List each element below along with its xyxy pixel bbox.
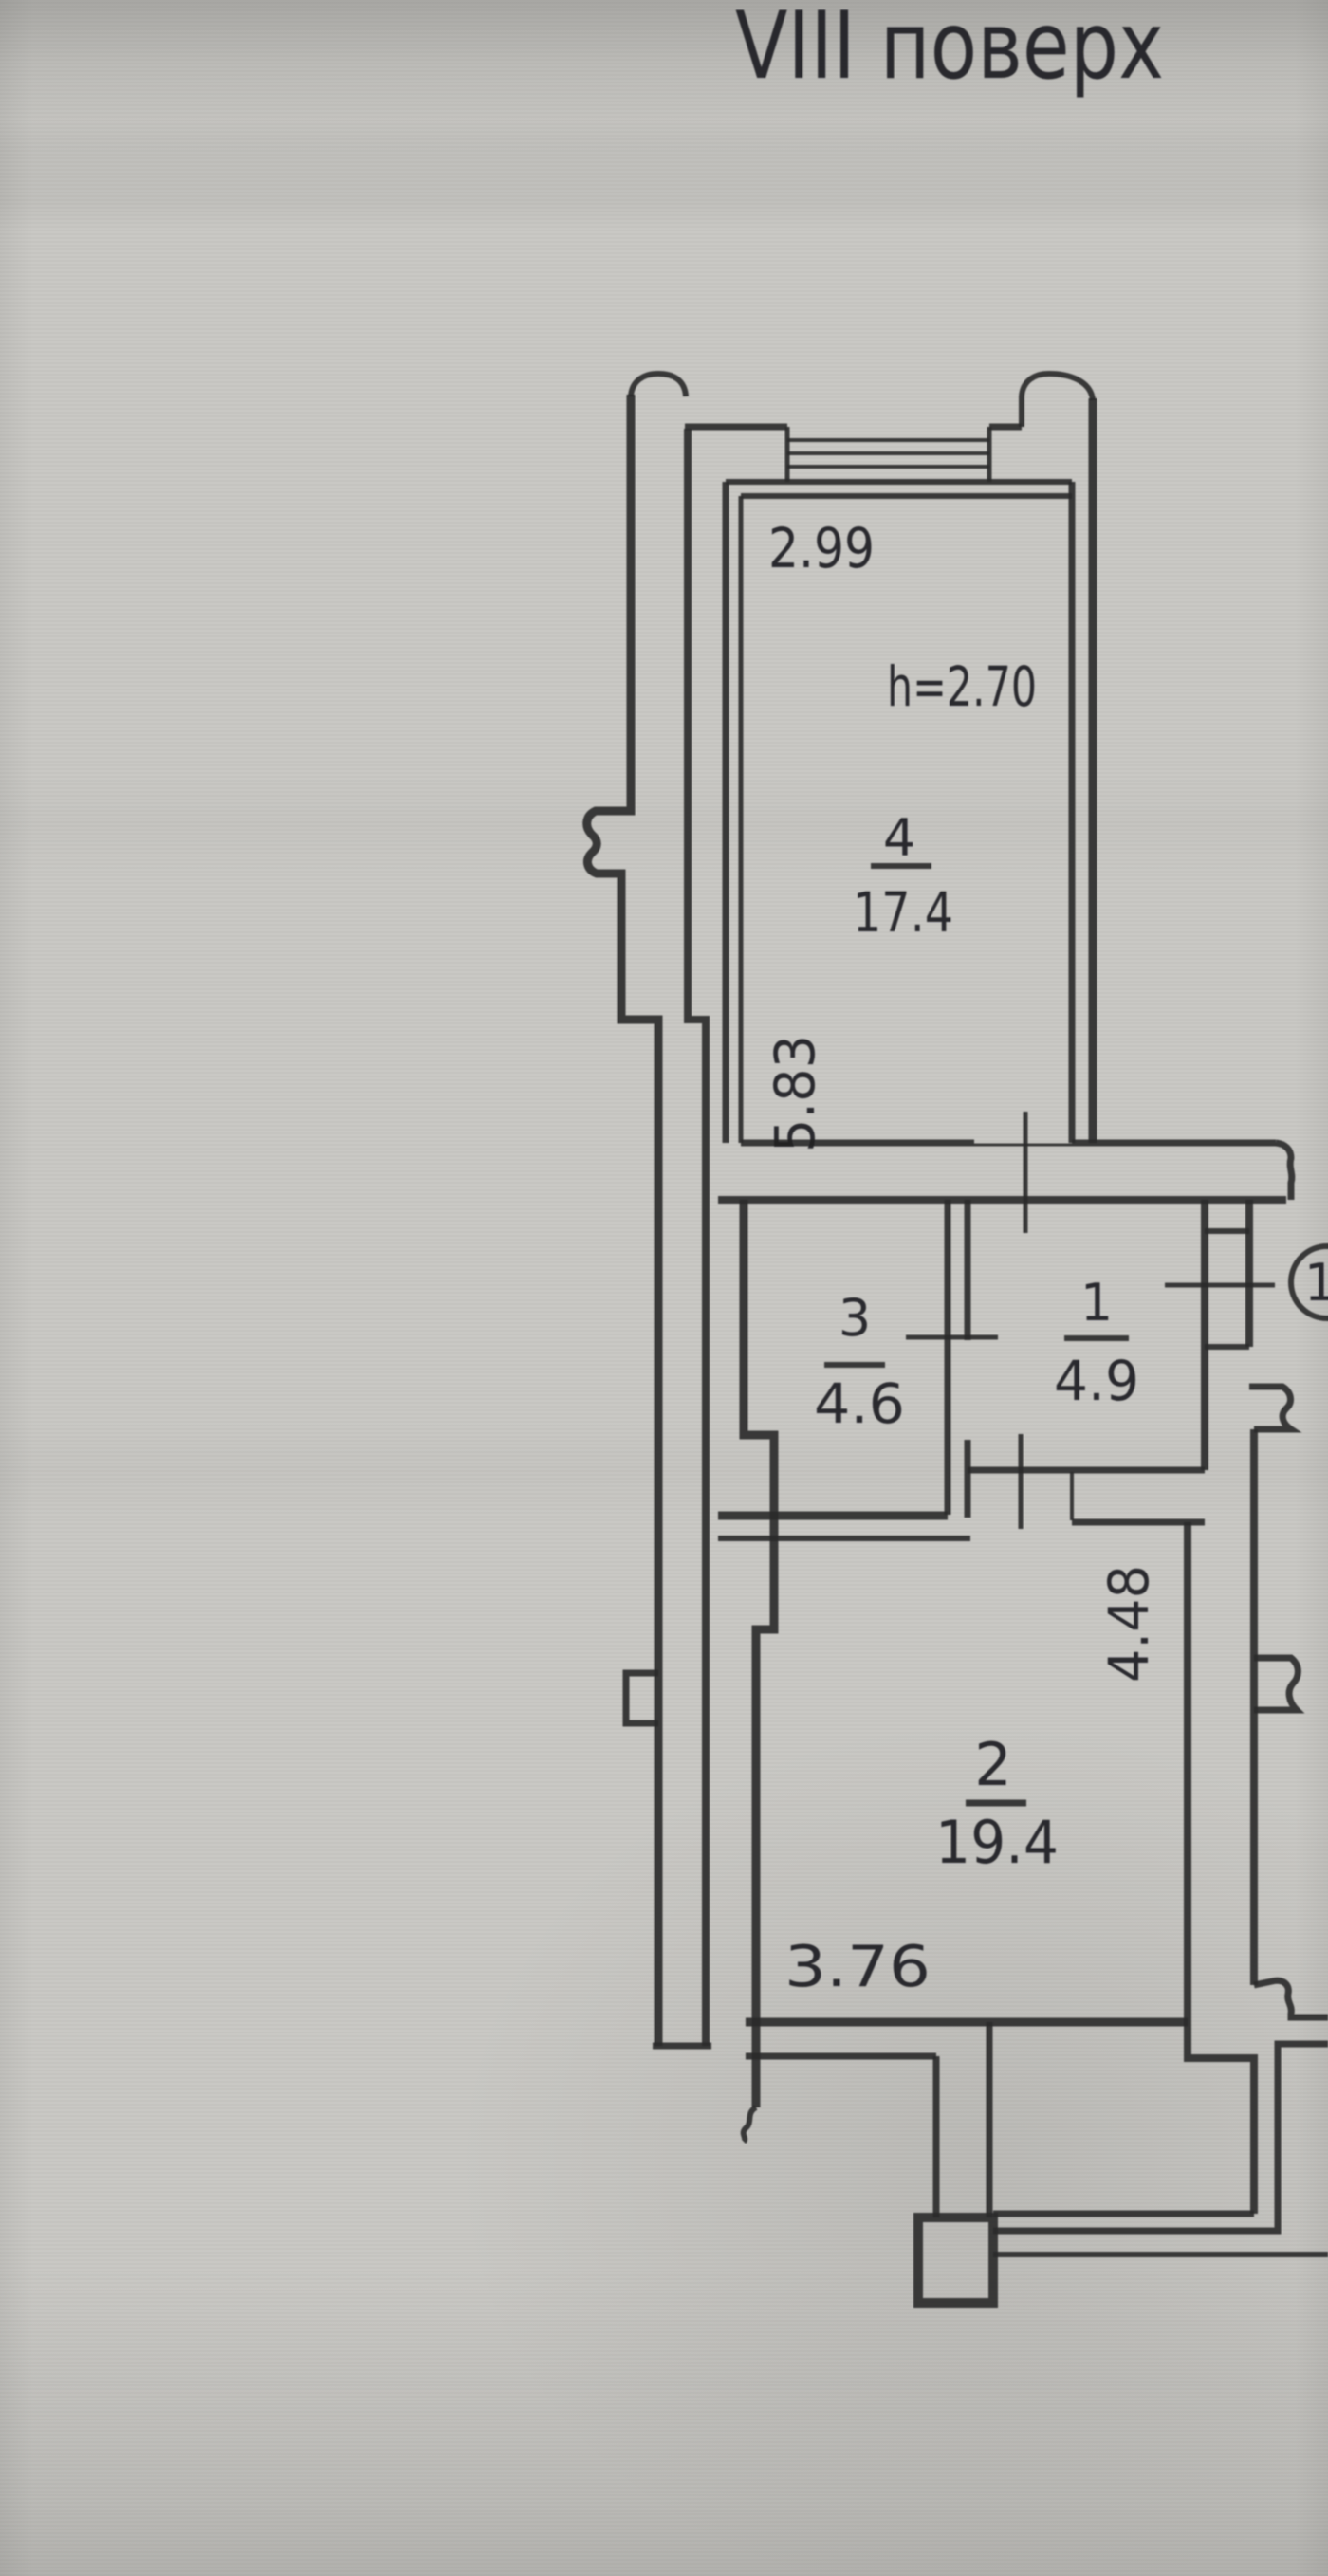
interior-walls (718, 1200, 1298, 2214)
left-outer-wall (587, 395, 658, 2046)
left-inner-wall (688, 429, 706, 2046)
top-left-break-notch-icon (631, 374, 686, 396)
structural-column (918, 2217, 993, 2303)
dim-room4-width: 2.99 (768, 516, 875, 580)
left-interior-wall (744, 1200, 774, 2107)
room4-area: 17.4 (853, 880, 953, 945)
room2-area: 19.4 (935, 1808, 1059, 1877)
bottom-left-break-notch-icon (744, 2107, 756, 2142)
ceiling-height-note: h=2.70 (887, 654, 1037, 719)
room2-right-wall (1188, 1522, 1254, 2214)
room2-number: 2 (974, 1730, 1011, 1799)
room4-number: 4 (883, 808, 915, 868)
neighbor-wall-corner (993, 2044, 1328, 2231)
right-wall-pilaster-lower (1254, 1658, 1298, 1710)
floor-title: VIII поверх (735, 0, 1164, 101)
apartment-number: 1 (1304, 1253, 1328, 1313)
neighbor-wall-vertical-band (936, 2022, 989, 2217)
balcony-window (685, 427, 1072, 482)
window-glazing-icon (787, 440, 989, 467)
dim-room4-depth: 5.83 (763, 1035, 827, 1152)
dim-room2-depth: 4.48 (1097, 1565, 1161, 1683)
room1-area: 4.9 (1054, 1349, 1139, 1413)
exterior-walls (587, 374, 1093, 2046)
corridor-wall-right-end-notch-icon (1276, 1143, 1292, 1200)
floor-plan-drawing: 1 VIII поверх 2.99 h=2.70 4 17.4 5.83 3 … (0, 0, 1328, 2576)
adjacent-structure (918, 1980, 1328, 2303)
room1-number: 1 (1080, 1273, 1113, 1333)
left-wall-pilaster (626, 1673, 658, 1723)
right-wall-pilaster-upper (1249, 1387, 1291, 1429)
bottom-right-notch-icon (1254, 1980, 1328, 2017)
scanned-floor-plan-page: 1 VIII поверх 2.99 h=2.70 4 17.4 5.83 3 … (0, 0, 1328, 2576)
apartment-number-badge: 1 (1291, 1246, 1328, 1318)
partition-room3-room1 (948, 1200, 968, 1518)
room3-number: 3 (839, 1288, 871, 1348)
dim-room2-width: 3.76 (784, 1934, 931, 2000)
room3-area: 4.6 (814, 1371, 905, 1436)
top-right-break-notch-icon (1022, 374, 1093, 427)
entrance-wall-rungs (1205, 1231, 1249, 1347)
